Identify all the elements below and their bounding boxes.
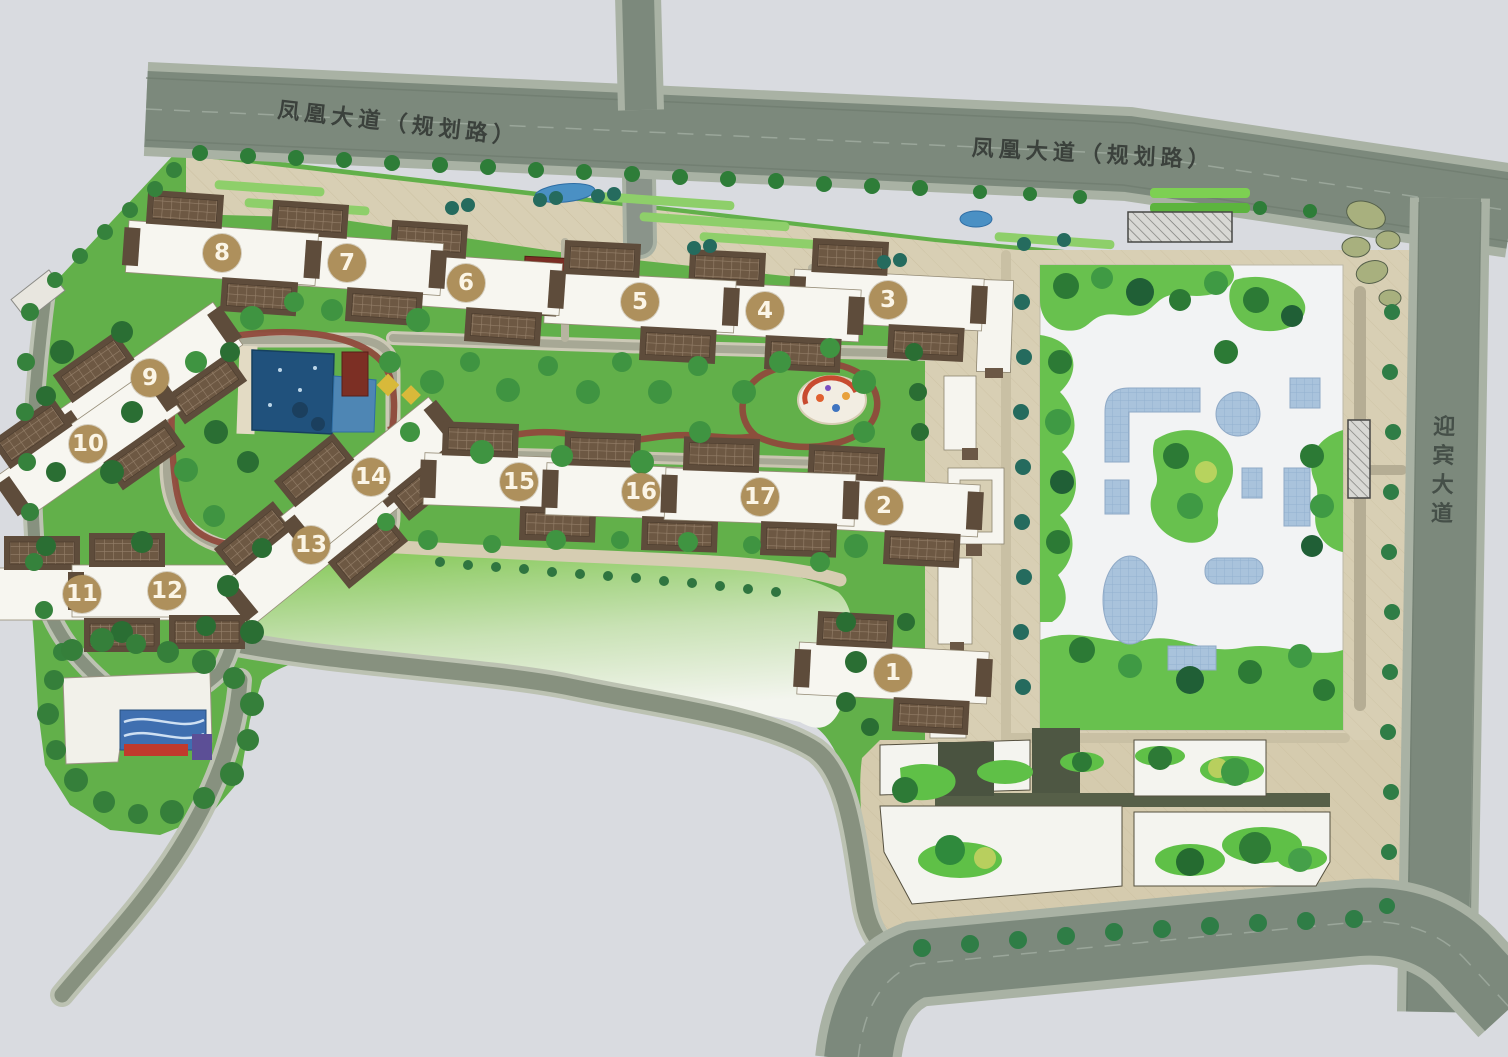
bus-shelter [1348, 420, 1370, 498]
building-badge-14: 14 [352, 458, 390, 496]
building-badge-4: 4 [746, 292, 784, 330]
building-badge-8: 8 [203, 234, 241, 272]
building-badge-5: 5 [621, 283, 659, 321]
building-badge-17: 17 [741, 478, 779, 516]
road-label-yingbin-avenue: 迎宾大道 [1422, 414, 1457, 531]
pond-top-right [960, 211, 992, 227]
building-badge-2: 2 [865, 487, 903, 525]
building-badge-6: 6 [447, 264, 485, 302]
building-badge-3: 3 [869, 281, 907, 319]
site-plan-canvas [0, 0, 1508, 1057]
building-badge-9: 9 [131, 359, 169, 397]
north-branch-road [638, 0, 641, 110]
building-badge-10: 10 [69, 425, 107, 463]
site-plan-map: 凤凰大道（规划路） 凤凰大道（规划路） 迎宾大道 123456789101112… [0, 0, 1508, 1057]
building-badge-15: 15 [500, 463, 538, 501]
building-badge-1: 1 [874, 654, 912, 692]
building-badge-16: 16 [622, 473, 660, 511]
building-badge-7: 7 [328, 244, 366, 282]
clubhouse [63, 672, 212, 764]
building-badge-12: 12 [148, 572, 186, 610]
building-badge-11: 11 [63, 575, 101, 613]
building-badge-13: 13 [292, 526, 330, 564]
parking-shelter [1128, 212, 1232, 242]
